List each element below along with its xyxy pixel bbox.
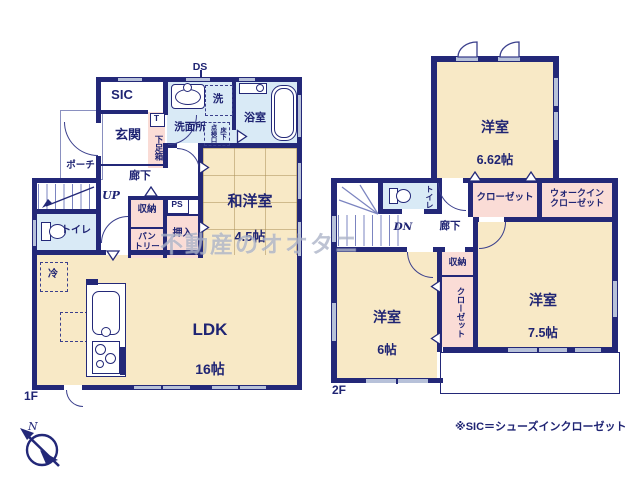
porch-label: ポーチ bbox=[61, 161, 100, 172]
window bbox=[33, 220, 36, 246]
shoebox-label: 下足箱 bbox=[150, 128, 163, 168]
burner-icon bbox=[105, 353, 116, 364]
window bbox=[332, 303, 336, 341]
door-marker-icon bbox=[199, 161, 210, 175]
ldk-size: 16帖 bbox=[195, 361, 225, 377]
room2-name: 洋室 bbox=[373, 309, 401, 325]
floorplan-canvas: 冷 洗 床下 点検口 DS SIC 玄関 ポーチ 洗面所 浴室 bbox=[0, 0, 640, 480]
door-marker-icon bbox=[431, 332, 442, 346]
fridge-label: 冷 bbox=[40, 269, 66, 281]
room1-size: 6.62帖 bbox=[477, 153, 514, 167]
wall bbox=[163, 77, 168, 115]
room1-name: 洋室 bbox=[481, 119, 509, 135]
duct-label: DS bbox=[186, 61, 214, 73]
window-tick bbox=[238, 385, 240, 390]
wall bbox=[378, 209, 402, 214]
bath-label: 浴室 bbox=[236, 112, 274, 125]
wall bbox=[424, 209, 442, 214]
stairs-winder-icon bbox=[338, 184, 378, 214]
window bbox=[239, 78, 255, 81]
wall-stub bbox=[86, 279, 98, 285]
burner-icon bbox=[96, 360, 104, 368]
footnote: ※SIC＝シューズインクローゼット bbox=[455, 418, 626, 434]
wall bbox=[32, 178, 101, 183]
window bbox=[613, 281, 617, 317]
window-tick bbox=[537, 347, 539, 353]
wic-label: ウォークイン クローゼット bbox=[543, 188, 611, 209]
faucet-icon bbox=[256, 84, 264, 92]
yoshitsu75-label: 洋室 7.5帖 bbox=[503, 276, 583, 341]
sic-label: SIC bbox=[100, 88, 144, 103]
stairs-dn-label: DN bbox=[390, 221, 416, 233]
ps-label: PS bbox=[168, 200, 186, 210]
ldk-label: LDK 16帖 bbox=[168, 300, 252, 378]
toilet-bowl-icon bbox=[396, 189, 411, 203]
back-door-arc bbox=[66, 390, 83, 407]
wall-stub bbox=[120, 347, 125, 375]
floor2-label: 2F bbox=[332, 384, 358, 398]
stairs-up-label: UP bbox=[98, 190, 124, 203]
toilet-label-2f: トイレ bbox=[421, 184, 434, 209]
wall bbox=[465, 247, 473, 252]
door-marker-icon bbox=[468, 171, 482, 182]
window-tick bbox=[396, 378, 398, 384]
balcony bbox=[440, 352, 620, 394]
closet1-label: クローゼット bbox=[476, 193, 534, 204]
wall bbox=[331, 178, 337, 383]
room3-name: 洋室 bbox=[529, 292, 557, 308]
genkan-label: 玄関 bbox=[104, 128, 152, 143]
wall bbox=[431, 56, 437, 182]
wayoshitsu-name: 和洋室 bbox=[227, 193, 272, 210]
burner-icon bbox=[95, 344, 106, 355]
wall bbox=[537, 178, 542, 222]
window bbox=[554, 112, 558, 140]
closet2-label: クローゼット bbox=[450, 280, 465, 344]
wall bbox=[473, 222, 478, 352]
yoshitsu662-label: 洋室 6.62帖 bbox=[453, 103, 537, 168]
wall bbox=[98, 110, 148, 114]
casement-window-icon bbox=[456, 40, 478, 58]
window bbox=[298, 163, 301, 199]
door-marker-icon bbox=[431, 280, 442, 294]
senmenjo-label: 洗面所 bbox=[167, 121, 213, 133]
cupboard-space bbox=[60, 312, 88, 342]
wall bbox=[331, 178, 437, 183]
hallway-label-2f: 廊下 bbox=[432, 220, 468, 232]
storage-label-2f: 収納 bbox=[443, 257, 472, 267]
wall bbox=[32, 250, 96, 255]
door-marker-icon bbox=[106, 250, 120, 261]
storage-label-1f: 収納 bbox=[133, 205, 161, 216]
wall bbox=[163, 214, 201, 216]
wall bbox=[612, 178, 618, 352]
window bbox=[554, 78, 558, 106]
wall bbox=[128, 227, 163, 229]
window bbox=[118, 78, 142, 81]
wall bbox=[504, 217, 617, 222]
shoe-t-label: T bbox=[150, 114, 163, 124]
door-marker-icon bbox=[237, 130, 248, 144]
window bbox=[186, 78, 210, 81]
pantry-label: パン トリー bbox=[132, 232, 162, 252]
wall bbox=[431, 56, 559, 62]
window-tick bbox=[161, 385, 163, 390]
bathtub-inner-icon bbox=[274, 88, 294, 138]
compass-north-label: N bbox=[27, 420, 38, 433]
wall bbox=[96, 250, 106, 255]
stairs-arrow-icon bbox=[38, 184, 96, 209]
door-marker-icon bbox=[524, 171, 538, 182]
yoshitsu6-label: 洋室 6帖 bbox=[351, 293, 423, 358]
room3-size: 7.5帖 bbox=[528, 326, 558, 340]
casement-window-icon bbox=[498, 40, 520, 58]
toilet-label-1f: トイレ bbox=[58, 225, 94, 237]
wall bbox=[468, 178, 473, 217]
wall bbox=[442, 275, 473, 277]
ldk-name: LDK bbox=[193, 320, 228, 339]
window bbox=[575, 348, 601, 352]
floor1-label: 1F bbox=[24, 390, 50, 404]
washer-label: 洗 bbox=[205, 93, 231, 105]
room2-size: 6帖 bbox=[377, 343, 396, 357]
faucet-icon bbox=[183, 83, 192, 92]
faucet-icon bbox=[101, 327, 111, 337]
door-marker-icon bbox=[144, 186, 158, 197]
compass-icon: N bbox=[14, 420, 68, 474]
window bbox=[298, 95, 301, 137]
wall bbox=[32, 209, 96, 214]
watermark: 不動産のオオタニ bbox=[160, 225, 360, 259]
hallway-label-1f: 廊下 bbox=[122, 170, 158, 183]
